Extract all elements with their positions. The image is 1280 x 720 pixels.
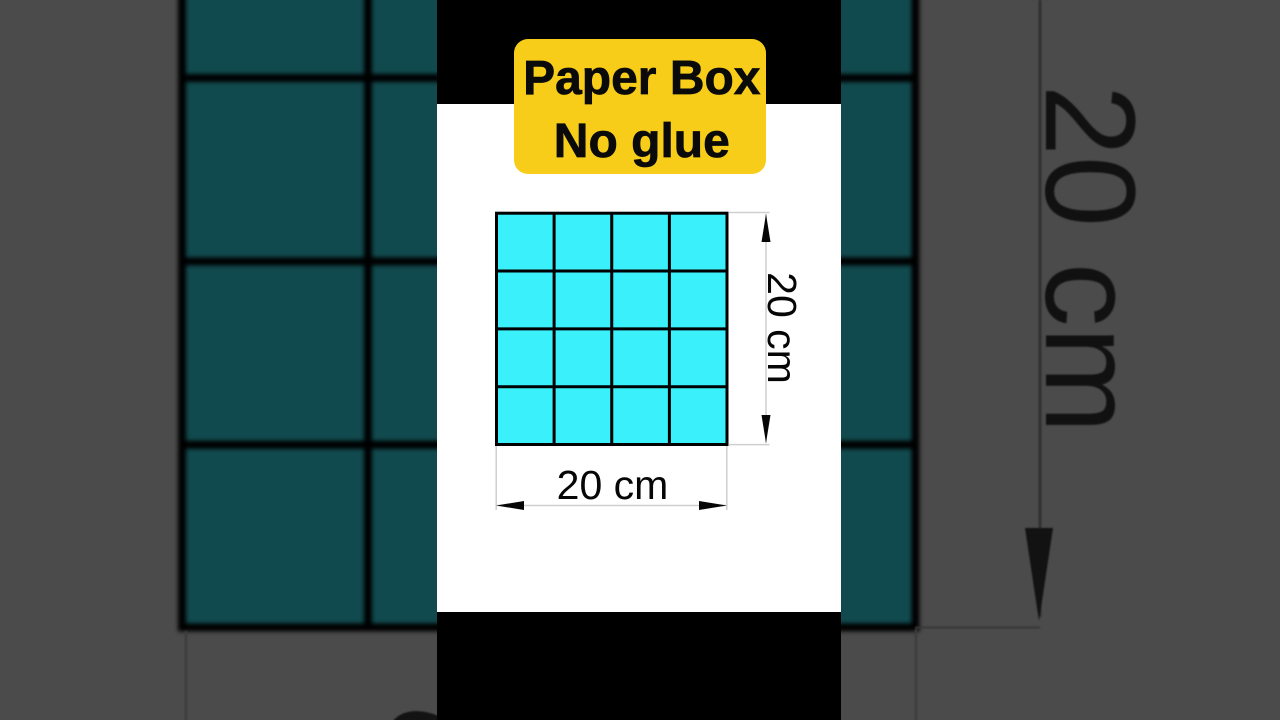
svg-text:20 cm: 20 cm [759,272,805,384]
svg-text:20 cm: 20 cm [557,462,669,508]
